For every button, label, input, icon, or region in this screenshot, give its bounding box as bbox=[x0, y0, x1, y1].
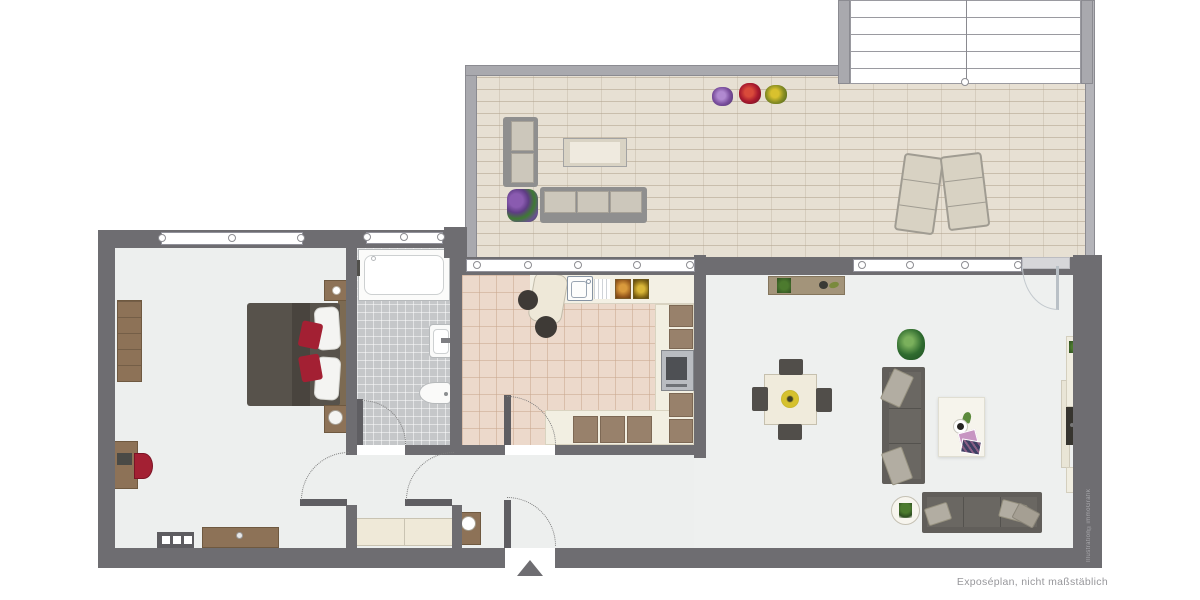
window-joint bbox=[524, 261, 532, 269]
oven-handle bbox=[666, 384, 687, 387]
outdoor-sofa-2-seat bbox=[503, 117, 538, 187]
window-joint bbox=[574, 261, 582, 269]
lounger-seam bbox=[945, 177, 983, 183]
counter-tile bbox=[669, 305, 693, 327]
window-joint bbox=[228, 234, 236, 242]
red-cushion bbox=[298, 353, 323, 382]
nightstand-lamp bbox=[332, 286, 341, 295]
bathtub-drain bbox=[371, 256, 376, 261]
dining-chair bbox=[752, 387, 768, 411]
flower-pot-red bbox=[739, 83, 761, 104]
cooktop-tray bbox=[633, 279, 649, 299]
living-room-window bbox=[853, 259, 1022, 272]
nightstand-top bbox=[324, 280, 347, 301]
sofa-seam bbox=[889, 443, 921, 444]
kitchen-bottom-wall-left bbox=[462, 445, 505, 455]
bedroom-door-leaf bbox=[300, 499, 347, 506]
bar-stool bbox=[535, 316, 557, 338]
kitchen-living-separator-wall bbox=[694, 255, 706, 458]
window-joint bbox=[633, 261, 641, 269]
left-exterior-wall bbox=[98, 230, 115, 568]
flower-box bbox=[507, 189, 538, 222]
bench-seam bbox=[404, 519, 405, 545]
lounger-seam bbox=[899, 204, 935, 210]
oven bbox=[661, 350, 694, 391]
counter-tile bbox=[600, 416, 625, 443]
sun-lounger-right bbox=[940, 152, 991, 232]
outdoor-sofa-cushion bbox=[544, 191, 576, 213]
outdoor-sofa-cushion bbox=[511, 153, 534, 183]
cooktop-tray bbox=[615, 279, 631, 299]
stairs-right-rail bbox=[1081, 0, 1093, 84]
window-joint bbox=[961, 261, 969, 269]
oven-door bbox=[666, 357, 687, 380]
floor-plan: { "texts": { "caption": "Exposéplan, nic… bbox=[0, 0, 1200, 600]
vestibule-door-leaf bbox=[405, 499, 452, 506]
exterior-stairs bbox=[850, 0, 1081, 84]
window-joint bbox=[906, 261, 914, 269]
illustration-watermark: Illustration©immoGrafik bbox=[1086, 462, 1098, 562]
window-joint bbox=[158, 234, 166, 242]
bathtub bbox=[358, 249, 450, 301]
dining-chair bbox=[778, 424, 802, 440]
kitchen-bottom-wall-right bbox=[555, 445, 694, 455]
counter-tile bbox=[627, 416, 652, 443]
wardrobe bbox=[117, 300, 142, 382]
dining-bowl bbox=[781, 390, 799, 408]
entrance-arrow bbox=[517, 560, 543, 576]
toilet-button bbox=[444, 392, 448, 396]
dresser bbox=[202, 527, 279, 548]
counter-tile bbox=[669, 393, 693, 417]
sink-drainer bbox=[594, 279, 610, 299]
window-joint bbox=[297, 234, 305, 242]
lounger-seam bbox=[948, 202, 986, 208]
window-joint bbox=[400, 233, 408, 241]
terrace-top-wall bbox=[465, 65, 850, 76]
side-table-round bbox=[891, 496, 920, 525]
window-joint bbox=[1014, 261, 1022, 269]
bathroom-right-wall bbox=[450, 250, 462, 445]
window-joint bbox=[858, 261, 866, 269]
radiator bbox=[157, 532, 194, 548]
dresser-knob bbox=[236, 532, 243, 539]
outdoor-sofa-cushion bbox=[511, 121, 534, 151]
sideboard-bowl bbox=[819, 281, 828, 289]
lr-sideboard bbox=[768, 276, 845, 295]
radiator-segment bbox=[173, 536, 181, 544]
nightstand-bottom bbox=[324, 405, 347, 433]
bathtub-basin bbox=[364, 255, 444, 295]
outdoor-coffee-table bbox=[563, 138, 627, 167]
toilet bbox=[419, 382, 451, 404]
laptop bbox=[117, 453, 132, 465]
counter-tile bbox=[669, 419, 693, 443]
outdoor-coffee-table-top bbox=[570, 142, 620, 163]
dining-chair bbox=[779, 359, 803, 375]
window-joint bbox=[363, 233, 371, 241]
sink-basin bbox=[571, 281, 587, 298]
flower-pot-purple bbox=[712, 87, 733, 106]
sideboard-sprig bbox=[828, 281, 839, 289]
bar-stool bbox=[518, 290, 538, 310]
lounger-seam bbox=[903, 179, 939, 185]
window-joint bbox=[686, 261, 694, 269]
side-table-plant bbox=[899, 503, 912, 518]
sofa-seam bbox=[963, 497, 964, 527]
coffee-cup-inner bbox=[957, 423, 964, 430]
dining-chair bbox=[816, 388, 832, 412]
bedroom-right-wall-upper bbox=[346, 248, 357, 455]
stairs-left-rail bbox=[838, 0, 850, 84]
sink-faucet bbox=[586, 279, 591, 284]
vestibule-wall bbox=[452, 505, 462, 548]
flower-pot-yellow bbox=[765, 85, 787, 104]
plan-caption: Exposéplan, nicht maßstäblich bbox=[930, 576, 1108, 588]
radiator-segment bbox=[184, 536, 192, 544]
stairs-center-divider bbox=[966, 0, 967, 84]
kitchen-sink bbox=[567, 276, 593, 301]
sofa-seam bbox=[889, 408, 921, 409]
outdoor-sofa-3-seat bbox=[540, 187, 647, 223]
counter-tile bbox=[669, 329, 693, 349]
nightstand-lamp bbox=[328, 410, 343, 425]
outdoor-sofa-cushion bbox=[610, 191, 642, 213]
sideboard-plant bbox=[777, 278, 791, 293]
hall-bench bbox=[355, 518, 454, 546]
floor-plant bbox=[897, 329, 925, 360]
window-joint bbox=[473, 261, 481, 269]
window-joint bbox=[437, 233, 445, 241]
desk-chair bbox=[134, 453, 153, 479]
radiator-segment bbox=[162, 536, 170, 544]
cabinet-mirror bbox=[461, 516, 476, 531]
outdoor-sofa-cushion bbox=[577, 191, 609, 213]
bottom-exterior-wall bbox=[98, 548, 1102, 568]
sofa-3-seat-vertical bbox=[882, 367, 925, 484]
stairs-joint bbox=[961, 78, 969, 86]
bedroom-right-wall-lower bbox=[346, 505, 357, 548]
dining-table bbox=[764, 374, 817, 425]
sofa-3-seat-horizontal bbox=[922, 492, 1042, 533]
counter-tile bbox=[573, 416, 598, 443]
